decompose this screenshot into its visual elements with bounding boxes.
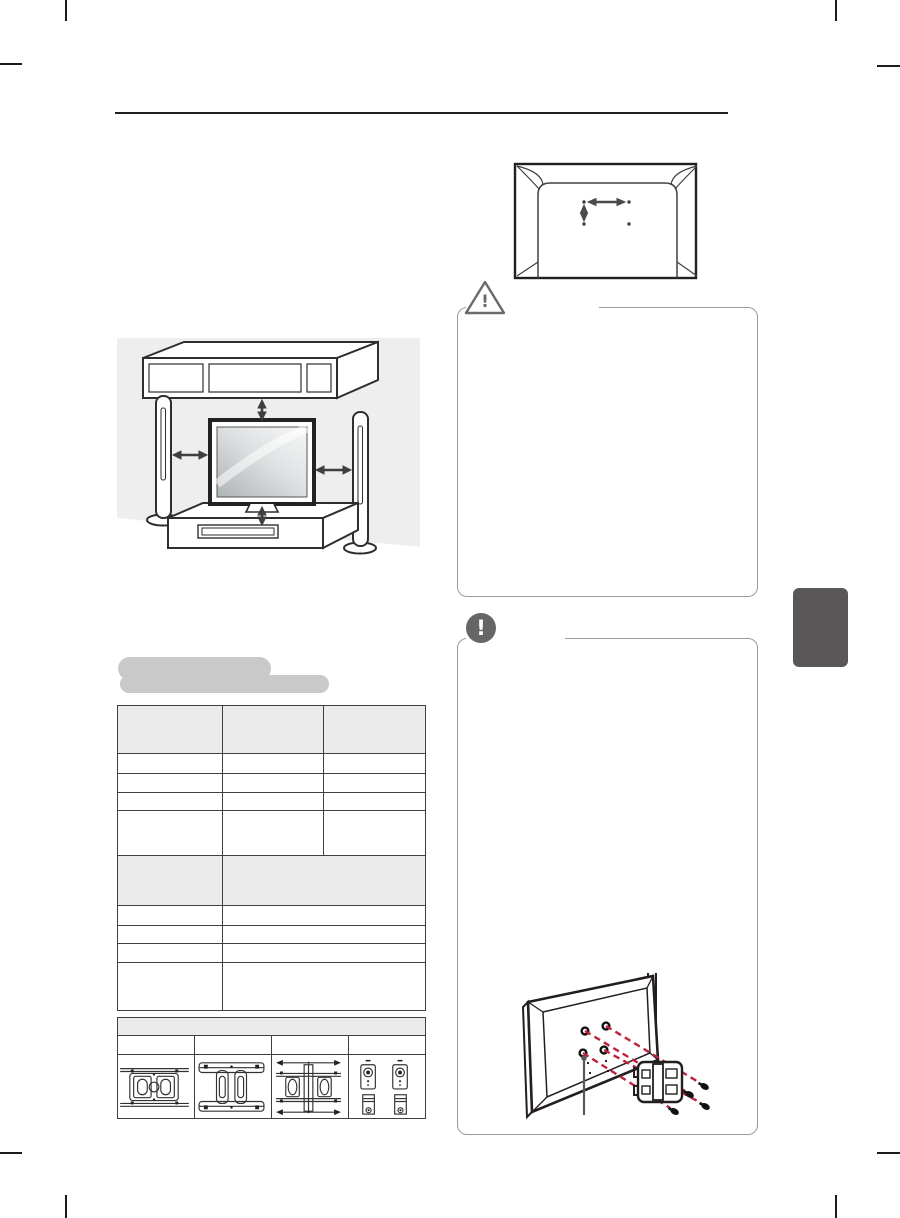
spec-table-row: [118, 754, 426, 774]
crop-mark-bottom-left-v: [65, 1195, 67, 1218]
crop-mark-bottom-right-v: [835, 1195, 837, 1218]
crop-mark-top-right-v: [835, 0, 837, 21]
header-rule: [115, 112, 728, 114]
manual-page: ! !: [0, 0, 900, 1218]
crop-mark-top-left-v: [65, 0, 67, 21]
spec-table-row: [118, 774, 426, 793]
wall-bracket: [634, 1062, 682, 1102]
crop-mark-bottom-left-h: [0, 1152, 22, 1154]
screw-spacer-kit-illustration: [349, 1057, 422, 1117]
accessory-table: [117, 1017, 426, 1119]
accessory-table-image-row: [118, 1055, 426, 1119]
tv-clearance-illustration: [110, 332, 445, 582]
spec-table-row: [118, 811, 426, 856]
crop-mark-bottom-right-h: [877, 1152, 900, 1154]
crop-mark-top-right-h: [877, 65, 900, 67]
wall-bracket-mounting-illustration: [495, 955, 760, 1127]
vesa-spacing-diagram: [512, 158, 702, 284]
spec-table-row: [118, 926, 426, 944]
section-title-highlight-2: [120, 675, 329, 693]
accessory-table-label-row: [118, 1036, 426, 1055]
tv-front: [210, 420, 314, 512]
crop-mark-top-left-h: [0, 63, 22, 65]
spec-table-row: [118, 944, 426, 963]
bracket-back-illustration: [195, 1057, 268, 1117]
warning-triangle-icon: !: [463, 279, 507, 317]
spec-table-row: [118, 963, 426, 1011]
spec-table-subheader-row: [118, 856, 426, 906]
chapter-side-tab: [793, 588, 848, 667]
spec-table-row: [118, 906, 426, 926]
note-exclamation-icon: !: [466, 613, 496, 643]
svg-text:!: !: [481, 292, 489, 312]
spec-table-row: [118, 793, 426, 811]
spec-table: [117, 705, 426, 1011]
wall-shelf: [143, 342, 378, 398]
bracket-front-illustration: [118, 1057, 191, 1117]
caution-box: [457, 307, 758, 597]
bracket-arm-illustration: [272, 1057, 345, 1117]
accessory-table-title-row: [118, 1018, 426, 1036]
spec-table-header-row: [118, 706, 426, 754]
